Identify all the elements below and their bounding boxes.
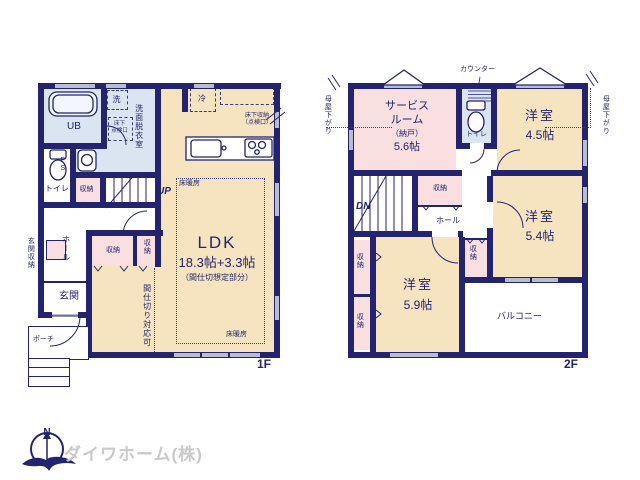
washroom-label: 洗面脱衣室 — [134, 104, 144, 149]
eaves-label: 母屋下がり — [601, 95, 609, 135]
room54-size-label: 5.4帖 — [505, 229, 575, 243]
storage-label: 収納 — [355, 253, 363, 269]
eaves-hatch-marker — [328, 75, 340, 90]
entrance-door-arc — [50, 316, 80, 346]
pipe-space-label: PS — [58, 157, 66, 173]
service-room-label: ルーム — [372, 114, 442, 127]
floor2-label: 2F — [564, 357, 578, 371]
counter-label: カウンター — [460, 66, 495, 74]
gable-vent-icon — [383, 70, 425, 85]
unit-bath-label: UB — [54, 121, 94, 133]
western-room-label: 洋室 — [505, 108, 575, 124]
closet-door-marker — [76, 202, 147, 271]
gable-vent-icon — [513, 68, 567, 85]
stairs-down-label: DN — [356, 201, 370, 213]
door-arc — [470, 149, 484, 163]
service-room-note-label: （納戸） — [372, 129, 442, 139]
underfloor-storage-label: 床下収納 （点検口） — [238, 113, 276, 127]
storage-label: 収納 — [73, 186, 100, 194]
stairs-up-label: UP — [157, 186, 171, 198]
door-arc — [432, 237, 458, 263]
counter-icon — [468, 77, 491, 101]
eaves-hatch-marker — [586, 71, 598, 86]
floor-heating-label: 床暖房 — [226, 331, 247, 339]
fridge-label: 冷 — [190, 94, 214, 104]
hall-label: ホール — [61, 235, 71, 262]
room45-size-label: 4.5帖 — [505, 128, 575, 142]
floor1-label: 1F — [257, 357, 271, 371]
ldk-note-label: （間仕切想定部分） — [168, 273, 266, 283]
toilet-label: トイレ — [462, 131, 491, 139]
toilet-label: トイレ — [44, 184, 70, 194]
entrance-label: 玄関 — [52, 291, 86, 303]
western-room-label: 洋室 — [382, 277, 454, 293]
door-arc — [123, 211, 147, 235]
storage-label: 収納 — [142, 239, 150, 255]
service-room-size-label: 5.6帖 — [372, 141, 442, 154]
door-arc — [497, 150, 520, 173]
floorplan-image: UB 洗面脱衣室 洗 床下 点検口 冷 床下収納 （点検口） トイレ PS 収納… — [0, 0, 640, 480]
room59-size-label: 5.9帖 — [382, 298, 454, 312]
storage-label: 収納 — [355, 313, 363, 329]
storage-label: 収納 — [418, 185, 462, 193]
balcony-label: バルコニー — [497, 311, 542, 322]
company-logo-text: ダイワホーム(株) — [64, 440, 203, 465]
porch-label: ポーチ — [33, 336, 54, 344]
storage-label: 収納 — [95, 247, 131, 255]
underfloor-hatch-label: 床下 点検口 — [108, 121, 131, 134]
laundry-label: 洗 — [107, 95, 126, 105]
entrance-storage-label: 玄関収納 — [26, 237, 34, 269]
western-room-label: 洋室 — [505, 209, 575, 225]
ldk-label: LDK — [170, 233, 264, 253]
partitionable-label: 間仕切り対応可 — [142, 284, 152, 347]
service-room-label: サービス — [372, 100, 442, 113]
storage-label: 収納 — [468, 245, 476, 261]
toilet-icon — [467, 101, 485, 132]
hall-label: ホール — [430, 216, 466, 226]
stairs-icon — [106, 173, 146, 208]
ldk-size-label: 18.3帖+3.3帖 — [168, 255, 266, 271]
bathtub-icon — [49, 92, 97, 116]
washbasin-icon — [78, 150, 96, 171]
floor-heating-label: 床暖房 — [179, 180, 200, 188]
kitchen-counter-icon — [186, 137, 274, 160]
eaves-label: 母屋下がり — [323, 95, 331, 135]
